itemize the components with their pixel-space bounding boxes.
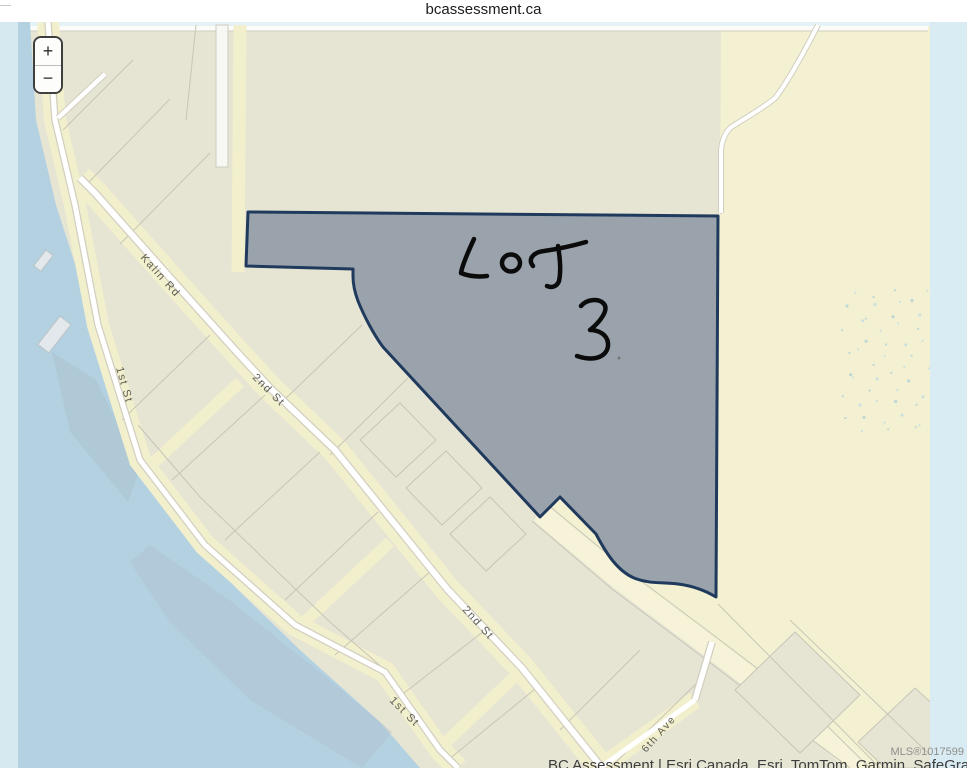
page-title: bcassessment.ca xyxy=(0,0,967,19)
zoom-in-button[interactable]: + xyxy=(35,38,61,65)
mls-label: MLS®1017599 xyxy=(890,746,964,758)
map[interactable]: Kalin Rd 1st St 2nd St 2nd St 1st St 6th… xyxy=(0,0,967,768)
zoom-control: + − xyxy=(33,36,63,94)
map-canvas[interactable]: Kalin Rd 1st St 2nd St 2nd St 1st St 6th… xyxy=(0,0,967,768)
map-edge-left xyxy=(0,22,18,768)
annotation-dot xyxy=(618,357,621,360)
zoom-out-button[interactable]: − xyxy=(35,65,61,93)
header-divider xyxy=(0,5,11,6)
top-road-band xyxy=(28,26,928,31)
browser-screenshot: Kalin Rd 1st St 2nd St 2nd St 1st St 6th… xyxy=(0,0,967,768)
map-attribution: BC Assessment | Esri Canada, Esri, TomTo… xyxy=(548,757,967,768)
map-edge-right xyxy=(930,22,967,768)
map-edge-top xyxy=(0,22,967,26)
header: bcassessment.ca xyxy=(0,0,967,22)
